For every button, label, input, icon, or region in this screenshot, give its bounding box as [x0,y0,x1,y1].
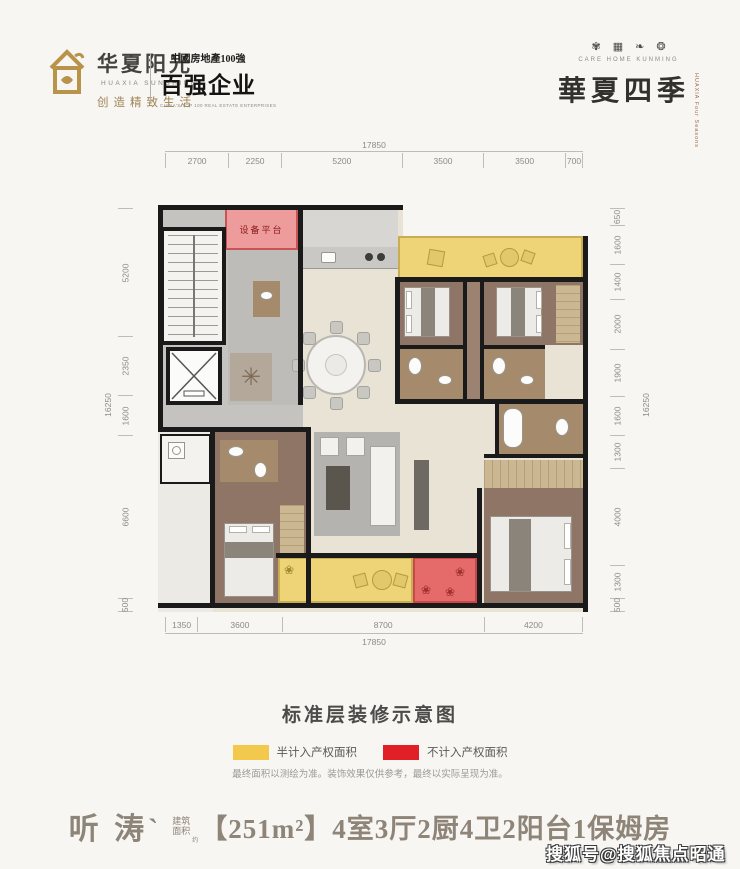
dim-segment: 1300 [610,566,625,598]
wall [158,205,163,432]
sink-icon [260,291,273,300]
dim-segment: 8700 [283,617,485,632]
wall [395,277,400,404]
dim-segment: 3600 [198,617,282,632]
flower-icon: ❀ [421,583,431,597]
seal-icon: ❂ [656,40,665,53]
toilet-icon [254,462,267,478]
watermark: 搜狐号@搜狐焦点昭通站 [546,840,740,869]
foyer-tile: ✳ [230,353,272,401]
wall [477,488,482,608]
top100-badge: 中國房地產100強 百强企业 CHINA'S TOP 100 REAL ESTA… [160,50,256,108]
seal-icon: ✾ [591,40,600,53]
dining-chair [368,359,381,372]
legend-label: 不计入产权面积 [427,744,508,760]
dim-segment: 500 [610,599,625,612]
equipment-platform-label: 设备平台 [239,223,283,236]
balcony-lounge [427,249,446,268]
legend-swatch [233,745,269,760]
balcony-table [500,248,519,267]
elevator-x-icon [170,351,218,401]
project-title: 華夏四季 [558,69,690,109]
dim-segment: 2700 [165,153,229,168]
dining-chair [303,386,316,399]
stairwell [160,227,226,345]
sink-icon [520,375,534,385]
dining-chair [330,397,343,410]
dim-line-top [165,151,583,152]
pillow [229,526,247,533]
bedroom-3 [484,282,583,345]
bathtub-icon [503,408,523,448]
area-word-top: 建筑 [172,816,190,826]
living-room-rug [314,432,400,536]
powder-room [253,281,280,317]
wall [306,427,311,603]
dim-row-top: 27002250520035003500700 [165,153,583,168]
sink-icon [438,375,452,385]
bed [224,523,274,597]
master-bathroom [497,404,583,454]
dim-segment: 2250 [229,153,282,168]
master-bed [490,516,572,592]
legend-note: 最终面积以测绘为准。装饰效果仅供参考，最终以实际呈现为准。 [0,766,740,780]
blanket [225,542,273,558]
badge-caption: CHINA'S TOP 100 REAL ESTATE ENTERPRISES [160,103,256,108]
dim-segment: 1900 [610,350,625,397]
badge-line1: 中國房地產100強 [160,50,256,65]
dining-chair [357,332,370,345]
equipment-platform: 设备平台 [225,208,298,250]
dim-segment: 700 [566,153,583,168]
dim-segment: 5200 [118,208,133,337]
dining-table-center [325,354,347,376]
bed [496,287,542,337]
dim-total-top: 17850 [165,140,583,150]
building-setback [403,205,588,236]
approx-mark: 约 [192,835,198,844]
dim-segment: 1600 [610,226,625,266]
master-wardrobe [484,460,583,488]
utility-room [160,434,211,484]
armchair [320,437,339,456]
wall [276,553,481,558]
blanket [421,288,435,336]
stove-burner-icon [377,253,385,261]
sofa [370,446,396,526]
dim-line-bottom [165,633,583,634]
wall [158,603,588,608]
wall [583,236,588,612]
dim-segment: 650 [610,208,625,226]
wall [495,404,499,454]
dim-segment: 3500 [403,153,485,168]
dim-row-bottom: 1350360087004200 [165,617,583,632]
dim-segment: 3500 [484,153,566,168]
brand-seal-icons: ✾▦❧❂ [556,40,701,53]
balcony-chair [393,573,409,589]
bathroom-2 [400,349,463,399]
dining-chair [303,332,316,345]
plant-icon: ❀ [284,563,294,577]
bathroom-3 [484,349,545,399]
dim-segment: 4000 [610,469,625,567]
floor-plan: 设备平台 ✳ [158,205,588,612]
dining-chair [330,321,343,334]
header-divider [150,54,151,104]
balcony-chair [520,249,535,264]
pillow [406,315,412,333]
balcony-chair [353,573,369,589]
project-brand: ✾▦❧❂ CARE HOME KUNMING 華夏四季 HUAXIA Four … [556,40,701,148]
legend-item: 不计入产权面积 [383,744,508,760]
stove-burner-icon [365,253,373,261]
maid-bathroom [220,440,278,482]
area-words: 建筑 面积 [172,816,190,837]
coffee-table [326,466,350,510]
dim-segment: 1600 [118,396,133,436]
toilet-icon [492,357,506,375]
dim-segment: 500 [118,599,133,612]
balcony-chair [482,252,497,267]
wall [210,430,215,603]
wall [484,454,583,458]
blanket [511,288,525,336]
dim-total-bottom: 17850 [165,637,583,647]
bed [404,287,450,337]
balcony-table [372,570,392,590]
kitchen-counter [303,247,398,269]
unit-name: 听 涛` [69,804,163,848]
wall [484,345,545,349]
area-word-bottom: 面积 [172,826,190,836]
dim-total-right: 16250 [641,393,651,417]
stair-divider [193,235,195,337]
wardrobe [556,285,580,343]
dim-segment: 5200 [282,153,403,168]
blanket [509,519,531,591]
wall [395,277,585,282]
dim-col-left: 5200235016006600500 [118,208,133,612]
master-bedroom [484,488,583,603]
dining-chair [357,386,370,399]
bedroom-2 [400,282,463,345]
flower-bed: ❀ ❀ ❀ [413,557,477,603]
pillow [564,559,571,585]
legend-swatch [383,745,419,760]
south-balcony: ❀ [278,557,413,603]
legend: 半计入产权面积不计入产权面积 [0,744,740,760]
dim-segment: 2350 [118,337,133,396]
north-balcony [398,236,583,282]
poster-page: 华夏阳光 HUAXIA SUNSHINE 创造精致生活 中國房地產100強 百强… [0,0,740,869]
project-caption: CARE HOME KUNMING [556,57,701,63]
flower-icon: ❀ [455,565,465,579]
kitchen-upper [303,210,398,247]
sink-icon [228,446,244,457]
dim-segment: 4200 [485,617,583,632]
pillow [406,291,412,309]
flower-icon: ❀ [445,585,455,599]
dim-segment: 6600 [118,436,133,599]
wall [463,282,467,400]
bedroom-corridor [467,282,480,400]
seal-icon: ▦ [613,40,623,53]
legend-label: 半计入产权面积 [277,744,358,760]
pillow [536,315,542,333]
armchair [346,437,365,456]
badge-line2: 百强企业 [160,66,256,100]
pillow [252,526,270,533]
project-subtitle: HUAXIA Four Seasons [693,73,699,148]
dim-segment: 1350 [165,617,198,632]
wall [158,205,403,210]
tv-console [414,460,429,530]
toilet-icon [408,357,422,375]
dim-segment: 1400 [610,265,625,300]
dim-segment: 2000 [610,300,625,349]
legend-item: 半计入产权面积 [233,744,358,760]
pillow [564,523,571,549]
seal-icon: ❧ [635,40,644,53]
plan-caption-title: 标准层装修示意图 [0,700,740,727]
wall [480,282,484,400]
washer-icon [168,442,185,459]
wall [395,399,585,404]
wall [298,205,303,405]
elevator-shaft [166,347,222,405]
wall [158,427,310,432]
dim-col-right: 65016001400200019001600130040001300500 [610,208,625,612]
toilet-icon [555,418,569,436]
dim-segment: 1300 [610,436,625,468]
wall [400,345,463,349]
pillow [536,291,542,309]
kitchen-sink-icon [321,252,336,263]
huaxia-sunshine-logo-icon [45,48,89,98]
dim-total-left: 16250 [103,393,113,417]
dim-segment: 1600 [610,397,625,437]
